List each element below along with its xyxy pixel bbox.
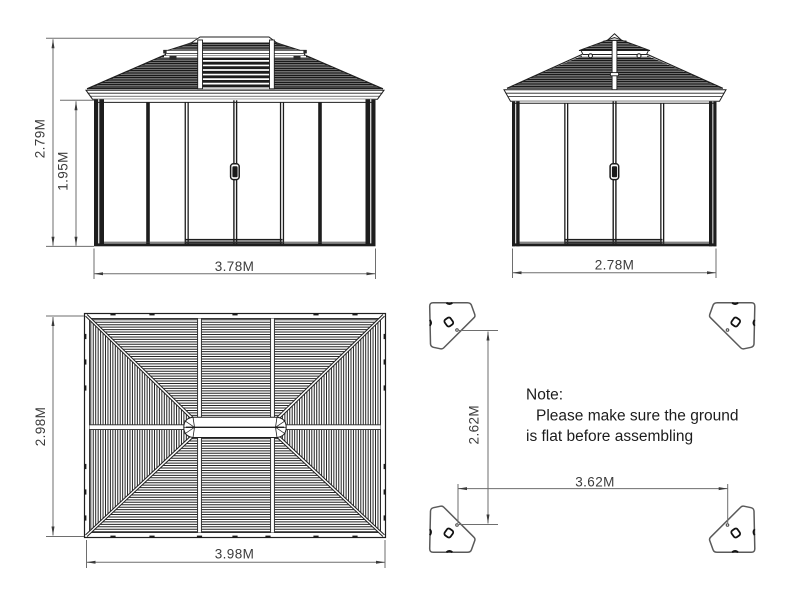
svg-text:2.78M: 2.78M — [595, 257, 635, 272]
svg-text:2.62M: 2.62M — [467, 405, 482, 445]
svg-text:2.98M: 2.98M — [33, 407, 48, 447]
svg-text:1.95M: 1.95M — [56, 151, 71, 191]
svg-text:3.62M: 3.62M — [575, 475, 615, 490]
svg-text:Please make sure the ground: Please make sure the ground — [536, 408, 738, 425]
svg-text:is flat before assembling: is flat before assembling — [526, 428, 693, 445]
svg-text:3.98M: 3.98M — [215, 547, 255, 562]
svg-text:3.78M: 3.78M — [215, 259, 255, 274]
svg-text:Note:: Note: — [526, 387, 563, 404]
svg-text:2.79M: 2.79M — [33, 119, 48, 159]
